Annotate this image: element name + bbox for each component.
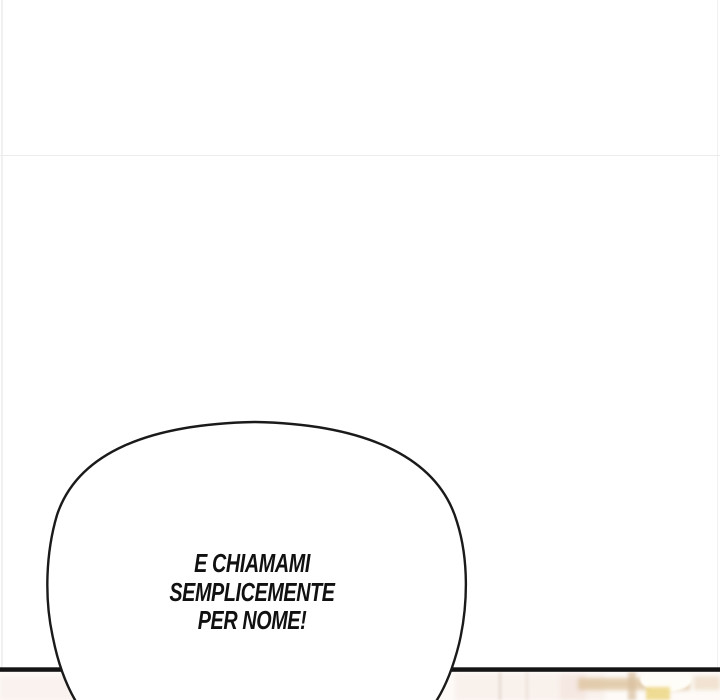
speech-text-line: E CHIAMAMI xyxy=(100,549,404,578)
speech-bubble-text: E CHIAMAMI SEMPLICEMENTE PER NOME! xyxy=(100,549,404,635)
comic-reader-page: { "page": { "type": "webtoon comic panel… xyxy=(0,0,720,700)
speech-text-line: PER NOME! xyxy=(100,606,404,635)
comic-page: E CHIAMAMI SEMPLICEMENTE PER NOME! xyxy=(0,0,720,700)
speech-text-line: SEMPLICEMENTE xyxy=(100,578,404,607)
